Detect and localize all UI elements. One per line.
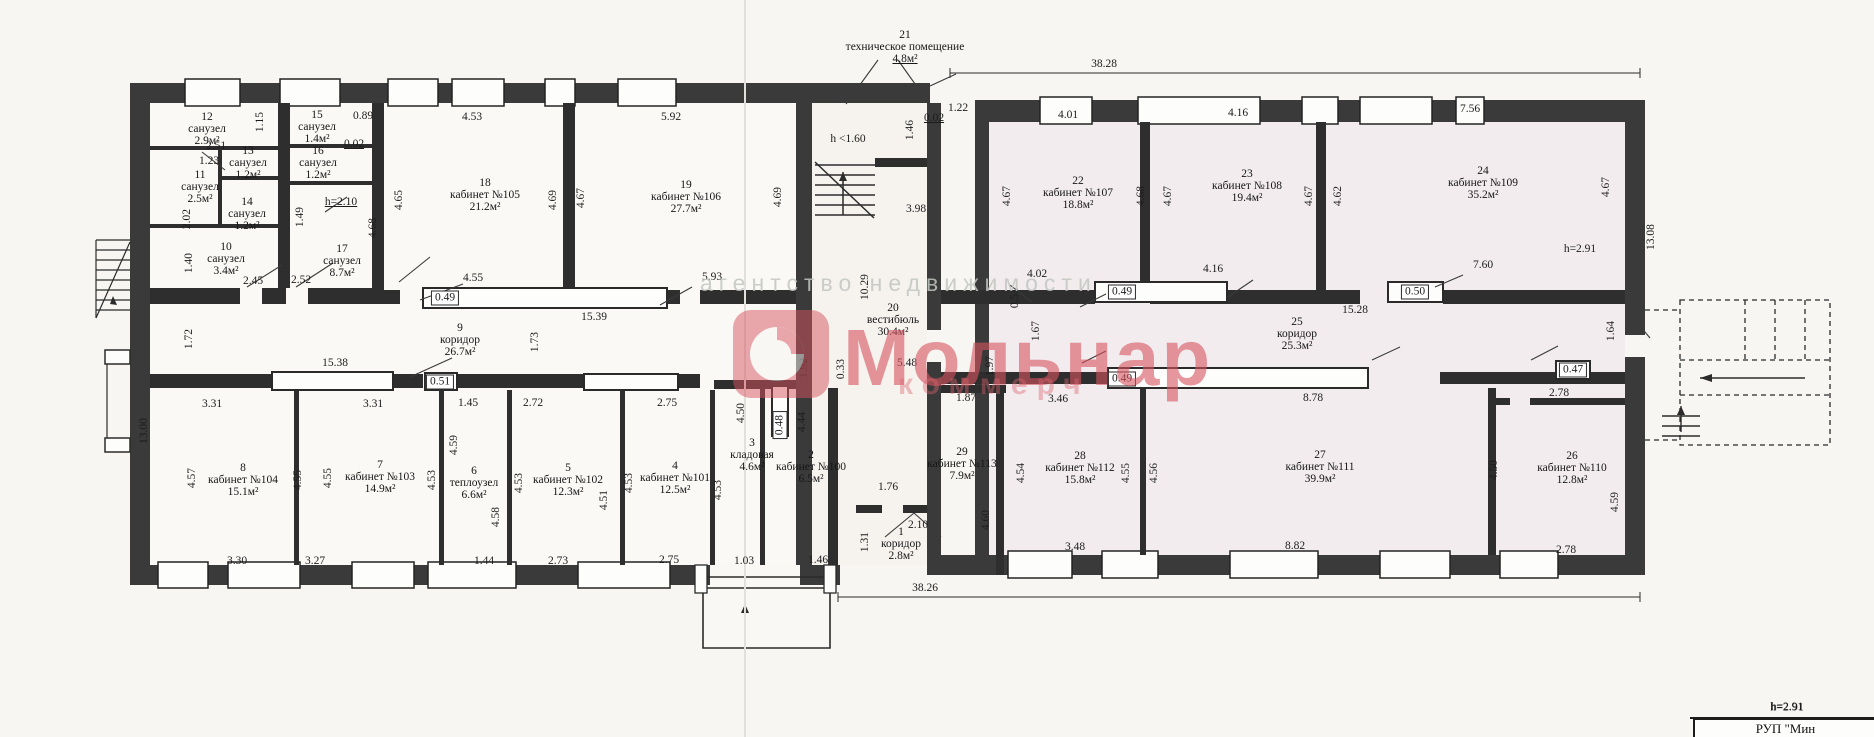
dimension-label: 1.03 [734, 555, 754, 567]
floor-plan-drawing [0, 0, 1874, 737]
dimension-label: 5.92 [661, 111, 681, 123]
room-label: 18кабинет №10521.2м² [450, 177, 520, 213]
dimension-label: 3.31 [202, 398, 222, 410]
dimension-label: 15.39 [581, 311, 607, 323]
room-label: 17санузел8.7м² [323, 243, 361, 279]
room-label: 10санузел3.4м² [207, 241, 245, 277]
dimension-label: 13.00 [138, 418, 150, 444]
dimension-label: 4.67 [1600, 177, 1612, 197]
room-label: 8кабинет №10415.1м² [208, 462, 278, 498]
dimension-label: 4.68 [367, 218, 379, 238]
dimension-label: 4.58 [490, 507, 502, 527]
dimension-label: 5.48 [897, 357, 917, 369]
dimension-label: 4.56 [1148, 463, 1160, 483]
dimension-label: 7.60 [1473, 259, 1493, 271]
dimension-label: 0.49 [1108, 372, 1136, 387]
room-label: 21техническое помещение4.8м² [846, 29, 965, 65]
dimension-label: 4.55 [463, 272, 483, 284]
dimension-label: 0.51 [1009, 288, 1021, 308]
dimension-label: 4.16 [1203, 263, 1223, 275]
dimension-label: 4.01 [1058, 109, 1078, 121]
dimension-label: 4.67 [575, 188, 587, 208]
dimension-label: 4.59 [1609, 492, 1621, 512]
dimension-label: 4.53 [513, 473, 525, 493]
title-block-height-note: h=2.91 [1770, 700, 1804, 715]
dimension-label: 4.69 [772, 187, 784, 207]
dimension-label: 38.26 [912, 582, 938, 594]
dimension-label: 3.30 [227, 555, 247, 567]
dimension-label: 1.40 [183, 253, 195, 273]
dimension-label: 3.98 [906, 203, 926, 215]
dimension-label: 1.92 [798, 358, 810, 378]
dimension-label: 4.62 [1332, 186, 1344, 206]
room-label: 9коридор26.7м² [440, 322, 480, 358]
dimension-label: 2.78 [1556, 544, 1576, 556]
title-block-org: РУП "Мин [1693, 718, 1874, 737]
dimension-label: 0.47 [1559, 363, 1587, 378]
dimension-label: 4.51 [598, 490, 610, 510]
dimension-label: 2.72 [523, 397, 543, 409]
dimension-label: 4.44 [796, 412, 808, 432]
dimension-label: 1.15 [254, 112, 266, 132]
dimension-label: 4.69 [547, 190, 559, 210]
dimension-label: 2.73 [548, 555, 568, 567]
dimension-label: 1.31 [859, 532, 871, 552]
room-label: 19кабинет №10627.7м² [651, 179, 721, 215]
dimension-label: h=2.91 [1564, 243, 1596, 255]
room-label: 11санузел2.5м² [181, 169, 219, 205]
dimension-label: 2.75 [657, 397, 677, 409]
dimension-label: 13.08 [1645, 224, 1657, 250]
floor-plan-page: 1коридор2.8м²2кабинет №1006.5м²3кладовая… [0, 0, 1874, 737]
dimension-label: 2.02 [181, 209, 193, 229]
room-label: 14санузел1.2м² [228, 196, 266, 232]
room-label: 22кабинет №10718.8м² [1043, 175, 1113, 211]
dimension-label: 1.23 [199, 155, 219, 167]
dimension-label: 0.48 [773, 411, 788, 439]
dimension-label: 5.93 [702, 271, 722, 283]
room-label: 13санузел1.2м² [229, 145, 267, 181]
dimension-label: 1.73 [529, 332, 541, 352]
dimension-label: 2.78 [1549, 387, 1569, 399]
dimension-label: 3.31 [363, 398, 383, 410]
dimension-label: h=2.10 [325, 196, 357, 208]
dimension-label: 0.50 [1401, 285, 1429, 300]
dimension-label: 3.48 [1065, 541, 1085, 553]
dimension-label: 1.45 [458, 397, 478, 409]
room-label: 15санузел1.4м² [298, 109, 336, 145]
room-label: 7кабинет №10314.9м² [345, 459, 415, 495]
dimension-label: 4.53 [623, 473, 635, 493]
room-label: 29кабинет №1137.9м² [927, 446, 996, 482]
dimension-label: 4.55 [1120, 463, 1132, 483]
dimension-label: 4.67 [1303, 186, 1315, 206]
dimension-label: 4.65 [393, 190, 405, 210]
dimension-label: 8.78 [1303, 392, 1323, 404]
dimension-label: 4.67 [1162, 186, 1174, 206]
dimension-label: 4.02 [1027, 268, 1047, 280]
dimension-label: 7.56 [1460, 103, 1480, 115]
dimension-label: 4.16 [1228, 107, 1248, 119]
dimension-label: 15.28 [1342, 304, 1368, 316]
dimension-label: 0.02 [344, 138, 364, 150]
dimension-label: 4.55 [322, 468, 334, 488]
room-label: 16санузел1.2м² [299, 145, 337, 181]
dimension-label: 3.46 [1048, 393, 1068, 405]
dimension-label: 3.27 [305, 555, 325, 567]
dimension-label: 4.57 [186, 468, 198, 488]
dimension-label: 4.50 [735, 403, 747, 423]
dimension-label: 0.89 [353, 110, 373, 122]
dimension-label: 4.53 [426, 470, 438, 490]
dimension-label: 1.46 [904, 120, 916, 140]
dimension-label: 1.22 [948, 102, 968, 114]
room-label: 5кабинет №10212.3м² [533, 462, 603, 498]
dimension-label: 4.68 [1135, 186, 1147, 206]
room-label: 24кабинет №10935.2м² [1448, 165, 1518, 201]
dimension-label: 4.53 [462, 111, 482, 123]
dimension-label: 0.33 [835, 359, 847, 379]
dimension-label: 2.52 [291, 274, 311, 286]
room-label: 2кабинет №1006.5м² [776, 449, 846, 485]
dimension-label: 38.28 [1091, 58, 1117, 70]
dimension-label: 1.87 [956, 392, 976, 404]
dimension-label: 2.51 [206, 140, 226, 152]
dimension-label: 4.53 [712, 480, 724, 500]
dimension-label: 1.76 [878, 481, 898, 493]
room-label: 28кабинет №11215.8м² [1045, 450, 1114, 486]
dimension-label: 1.64 [1605, 321, 1617, 341]
room-label: 27кабинет №11139.9м² [1285, 449, 1354, 485]
dimension-label: 4.50 [1488, 460, 1500, 480]
room-label: 4кабинет №10112.5м² [640, 460, 710, 496]
room-label: 1коридор2.8м² [881, 526, 921, 562]
dimension-label: 1.46 [808, 554, 828, 566]
room-label: 6теплоузел6.6м² [450, 465, 498, 501]
dimension-label: 1.72 [183, 329, 195, 349]
dimension-label: 1.97 [984, 356, 996, 376]
room-label: 26кабинет №11012.8м² [1537, 450, 1606, 486]
dimension-label: 1.44 [474, 555, 494, 567]
room-label: 25коридор25.3м² [1277, 316, 1317, 352]
dimension-label: 1.67 [1030, 321, 1042, 341]
dimension-label: 4.60 [980, 510, 992, 530]
dimension-label: 0.49 [1108, 285, 1136, 300]
room-label: 20вестибюль30.4м² [867, 302, 919, 338]
dimension-label: h <1.60 [830, 133, 865, 145]
dimension-label: 0.51 [426, 375, 454, 390]
dimension-label: 1.49 [294, 207, 306, 227]
dimension-label: 0.02 [924, 112, 944, 124]
dimension-label: 2.10 [908, 519, 928, 531]
dimension-label: 4.55 [292, 470, 304, 490]
dimension-label: 4.54 [1015, 463, 1027, 483]
dimension-label: 2.45 [243, 275, 263, 287]
dimension-label: 2.75 [659, 554, 679, 566]
dimension-label: 8.82 [1285, 540, 1305, 552]
dimension-label: 4.59 [448, 435, 460, 455]
room-label: 3кладовая4.6м² [730, 437, 774, 473]
dimension-label: 4.67 [1001, 186, 1013, 206]
dimension-label: 15.38 [322, 357, 348, 369]
dimension-label: 0.49 [431, 291, 459, 306]
dimension-label: 10.29 [859, 274, 871, 300]
room-label: 23кабинет №10819.4м² [1212, 168, 1282, 204]
